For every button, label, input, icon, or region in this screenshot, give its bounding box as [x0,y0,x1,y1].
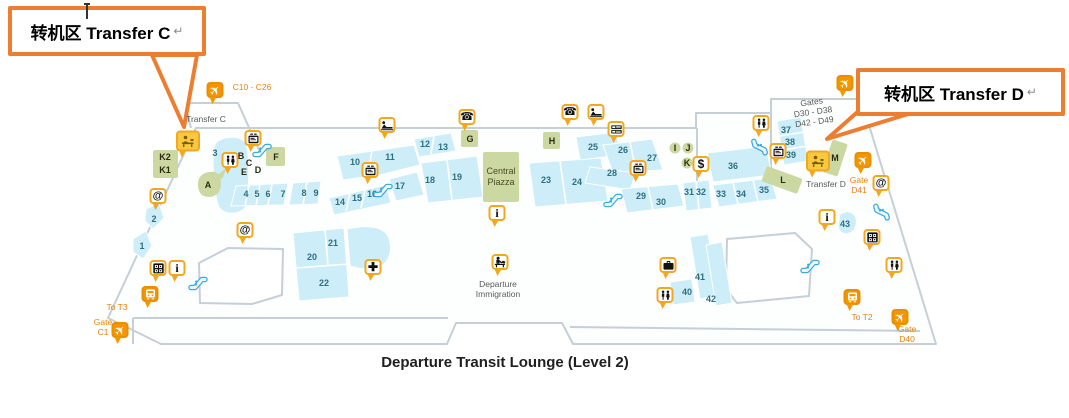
area-number-14: 14 [335,197,345,207]
area-letter-H: H [549,136,556,146]
transfer-counter-icon [176,131,200,152]
map-label: To T2 [851,312,872,322]
area-number-2: 2 [151,214,156,224]
map-label: To T3 [106,302,127,312]
callout-transfer-c-label: 转机区 Transfer C [31,19,171,44]
escalator-icon [188,275,208,291]
area-number-32: 32 [696,187,706,197]
terminal-outline [108,99,936,344]
restroom-icon [753,115,770,131]
telephone-icon: ☎ [459,109,476,125]
entertainment-icon [362,162,379,178]
area-number-4: 4 [243,189,248,199]
area-number-40: 40 [682,287,692,297]
restroom-icon [657,287,674,303]
area-number-20: 20 [307,252,317,262]
skytrain-icon [142,286,159,302]
area-number-5: 5 [254,189,259,199]
map-label: Transfer C [186,114,226,124]
callout-transfer-c[interactable]: 转机区 Transfer C ↵ [8,6,206,56]
information-icon: i [819,209,836,225]
area-number-39: 39 [786,150,796,160]
escalator-icon [373,182,393,198]
area-number-24: 24 [572,177,582,187]
airplane-gate-icon: ✈ [837,75,854,91]
entertainment-icon [630,160,647,176]
area-letter-I: I [674,143,677,153]
map-title: Departure Transit Lounge (Level 2) [381,354,629,371]
map-label: Gates D30 - D38 D42 - D49 [792,94,835,130]
game-room-icon [864,229,881,245]
area-letter-J: J [685,143,690,153]
map-label: Departure Immigration [476,279,520,299]
telephone-icon: ☎ [562,104,579,120]
area-number-12: 12 [420,139,430,149]
area-number-17: 17 [395,181,405,191]
rest-area-icon [588,104,605,120]
first-aid-icon: ✚ [365,259,382,275]
money-changer-icon: $ [693,156,710,172]
area-letter-L: L [780,175,786,185]
information-icon: i [169,260,186,276]
entertainment-icon [770,143,787,159]
map-label: Transfer D [806,179,846,189]
skytrain-icon [844,289,861,305]
baggage-icon [660,257,677,273]
area-number-18: 18 [425,175,435,185]
area-number-19: 19 [452,172,462,182]
area-number-29: 29 [636,191,646,201]
callout-transfer-d[interactable]: 转机区 Transfer D ↵ [856,68,1065,116]
restroom-icon [222,152,239,168]
callout-transfer-d-label: 转机区 Transfer D [884,80,1024,105]
area-letter-E: E [241,167,247,177]
map-label: Gate D41 [850,175,868,195]
map-label: Gate C1 [94,317,112,337]
escalator-icon [252,142,272,158]
area-number-25: 25 [588,142,598,152]
area-number-34: 34 [736,189,746,199]
map-label: C10 - C26 [233,82,272,92]
area-number-15: 15 [352,193,362,203]
area-number-26: 26 [618,145,628,155]
currency-exchange-icon [608,121,625,137]
area-number-3: 3 [212,148,217,158]
area-number-22: 22 [319,278,329,288]
area-letter-K: K [684,158,691,168]
area-number-42: 42 [706,294,716,304]
area-letter-K2: K2 [159,152,171,162]
airplane-gate-icon: ✈ [855,152,872,168]
area-number-27: 27 [647,153,657,163]
area-number-23: 23 [541,175,551,185]
area-letter-M: M [831,153,839,163]
airplane-gate-icon: ✈ [207,82,224,98]
area-letter-F: F [273,152,279,162]
area-number-30: 30 [656,197,666,207]
area-number-21: 21 [328,238,338,248]
area-letter-G: G [466,134,473,144]
rest-area-icon [379,117,396,133]
area-number-9: 9 [313,188,318,198]
area-number-7: 7 [280,189,285,199]
area-letter-K1: K1 [159,165,171,175]
escalator-icon [800,258,820,274]
area-number-31: 31 [684,187,694,197]
area-number-43: 43 [840,219,850,229]
area-number-11: 11 [385,152,395,162]
area-letter-D: D [255,165,262,175]
area-number-36: 36 [728,161,738,171]
area-number-41: 41 [695,272,705,282]
internet-icon: @ [150,188,167,204]
paragraph-mark: ↵ [1027,85,1037,99]
area-number-13: 13 [438,142,448,152]
area-letter-B: B [238,151,245,161]
area-number-6: 6 [265,189,270,199]
area-number-1: 1 [139,241,144,251]
area-number-28: 28 [607,168,617,178]
internet-icon: @ [237,222,254,238]
area-number-37: 37 [781,125,791,135]
airplane-gate-icon: ✈ [892,309,909,325]
area-number-35: 35 [759,185,769,195]
restroom-icon [886,257,903,273]
airport-map-page: ✈✈✈✈✈@@@iii$☎☎✚1234567891011121314151617… [0,0,1069,418]
area-number-10: 10 [350,157,360,167]
area-letter-A: A [205,180,212,190]
transfer-counter-icon [806,151,830,172]
information-icon: i [489,205,506,221]
immigration-icon [492,254,509,270]
area-number-8: 8 [301,188,306,198]
area-number-33: 33 [716,189,726,199]
escalator-icon [603,192,623,208]
map-label: Central Piazza [486,166,515,188]
text-cursor [86,4,88,19]
game-room-icon [150,260,167,276]
airplane-gate-icon: ✈ [112,322,129,338]
internet-icon: @ [873,175,890,191]
paragraph-mark: ↵ [173,24,183,38]
